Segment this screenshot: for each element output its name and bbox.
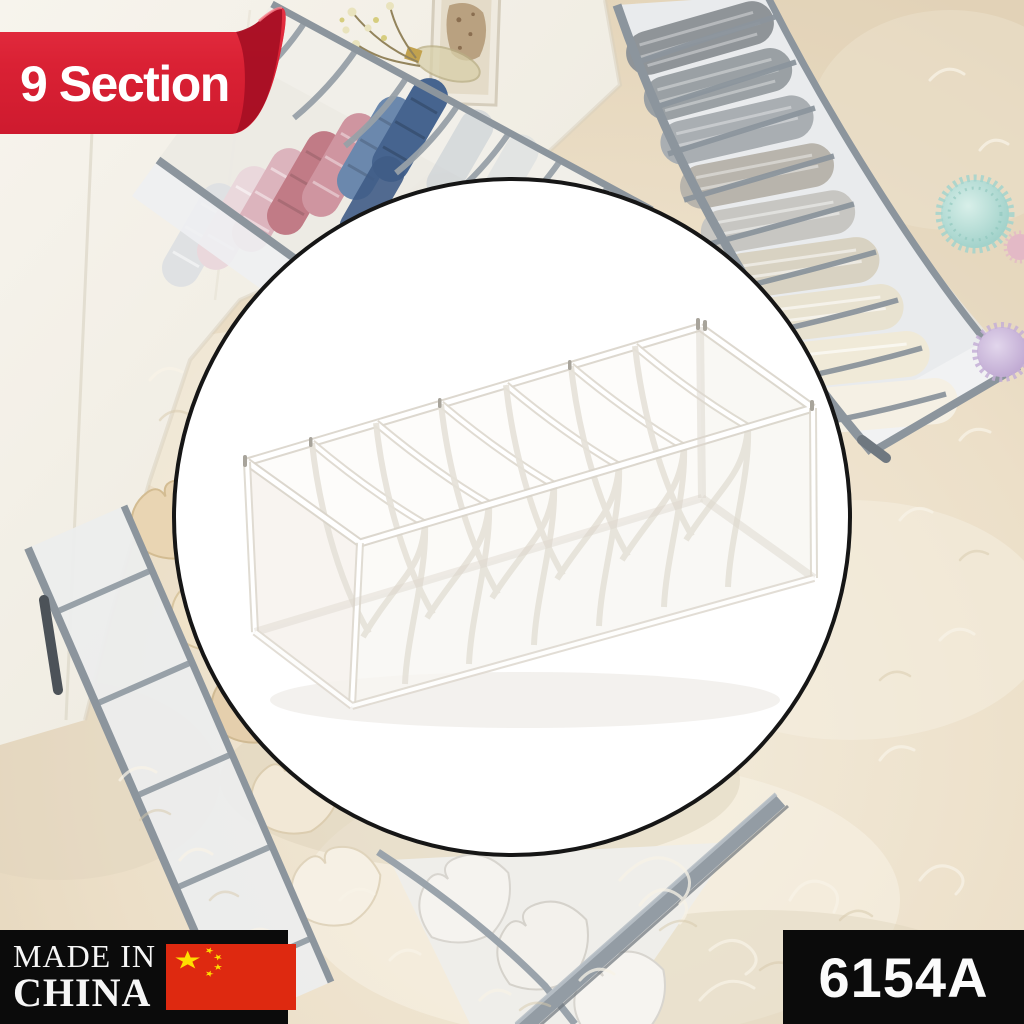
made-in-china-text: MADE IN CHINA (13, 940, 156, 1013)
china-label: CHINA (13, 973, 156, 1014)
made-in-label: MADE IN (13, 940, 156, 973)
product-code-label: 6154A (818, 945, 988, 1010)
ribbon-label: 9 Section (20, 56, 229, 112)
product-inset-circle (172, 177, 852, 857)
section-ribbon: 9 Section (0, 0, 310, 150)
mesh-organizer-product (172, 177, 852, 857)
made-in-china-badge: MADE IN CHINA (0, 930, 288, 1024)
product-code-badge: 6154A (783, 930, 1024, 1024)
china-flag-icon (166, 944, 296, 1010)
pompom-flower-lavender (975, 325, 1024, 379)
product-image-canvas: 9 Section MADE IN CHINA 6154A (0, 0, 1024, 1024)
pompom-flower-teal (939, 178, 1011, 250)
